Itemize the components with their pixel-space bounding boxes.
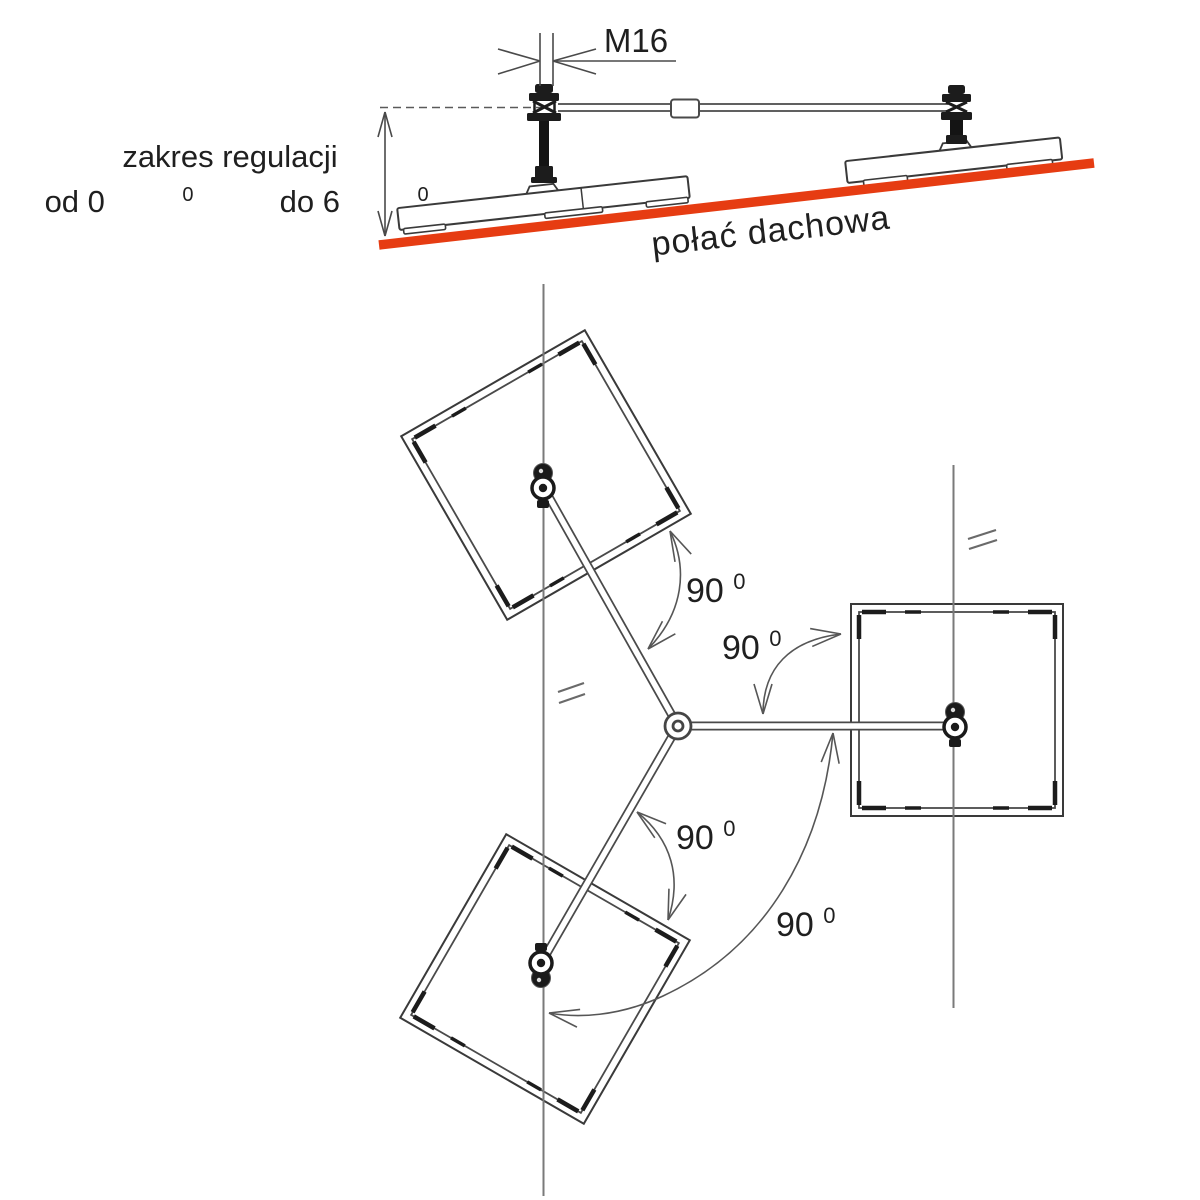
range-sup: 0 bbox=[182, 184, 193, 206]
range-label-line2: od 0 0 do 6 0 bbox=[0, 173, 489, 219]
range-text: od 0 bbox=[45, 184, 105, 219]
angle-sup: 0 bbox=[723, 816, 735, 841]
angle-arc-bottom bbox=[637, 812, 674, 920]
angle-label-3: 90 0 bbox=[676, 816, 736, 857]
angle-value: 90 bbox=[722, 629, 760, 667]
angle-value: 90 bbox=[676, 819, 714, 857]
rod-coupler-icon bbox=[671, 100, 699, 118]
diagram-canvas: M16 zakres regulacji od 0 0 do 6 0 połać… bbox=[0, 0, 1200, 1200]
threaded-rod bbox=[558, 100, 948, 118]
side-view: M16 zakres regulacji od 0 0 do 6 0 połać… bbox=[0, 22, 1094, 264]
dim-arrow-left-icon bbox=[498, 49, 540, 74]
range-label-line1: zakres regulacji bbox=[122, 139, 337, 174]
adjustment-range-label: zakres regulacji od 0 0 do 6 0 bbox=[0, 139, 489, 219]
angle-label-2: 90 0 bbox=[722, 626, 782, 667]
angle-value: 90 bbox=[686, 572, 724, 610]
angle-sup: 0 bbox=[823, 903, 835, 928]
range-text: do 6 bbox=[271, 184, 340, 219]
plan-view: 90 0 90 0 90 0 90 0 bbox=[400, 284, 1063, 1196]
m16-label: M16 bbox=[604, 22, 668, 59]
parallel-mark-right-icon bbox=[968, 530, 997, 549]
angle-value: 90 bbox=[776, 906, 814, 944]
m16-dimension: M16 bbox=[498, 22, 676, 86]
pivot-joint bbox=[665, 713, 691, 739]
angle-label-1: 90 0 bbox=[686, 569, 746, 610]
angle-arc-top-left bbox=[648, 531, 680, 649]
technical-diagram: M16 zakres regulacji od 0 0 do 6 0 połać… bbox=[0, 0, 1200, 1200]
parallel-mark-left-icon bbox=[558, 683, 585, 703]
range-sup: 0 bbox=[418, 184, 429, 206]
angle-sup: 0 bbox=[769, 626, 781, 651]
angle-label-4: 90 0 bbox=[776, 903, 836, 944]
angle-sup: 0 bbox=[733, 569, 745, 594]
bolt-assembly-left bbox=[527, 84, 561, 183]
bolt-assembly-right bbox=[941, 85, 972, 144]
